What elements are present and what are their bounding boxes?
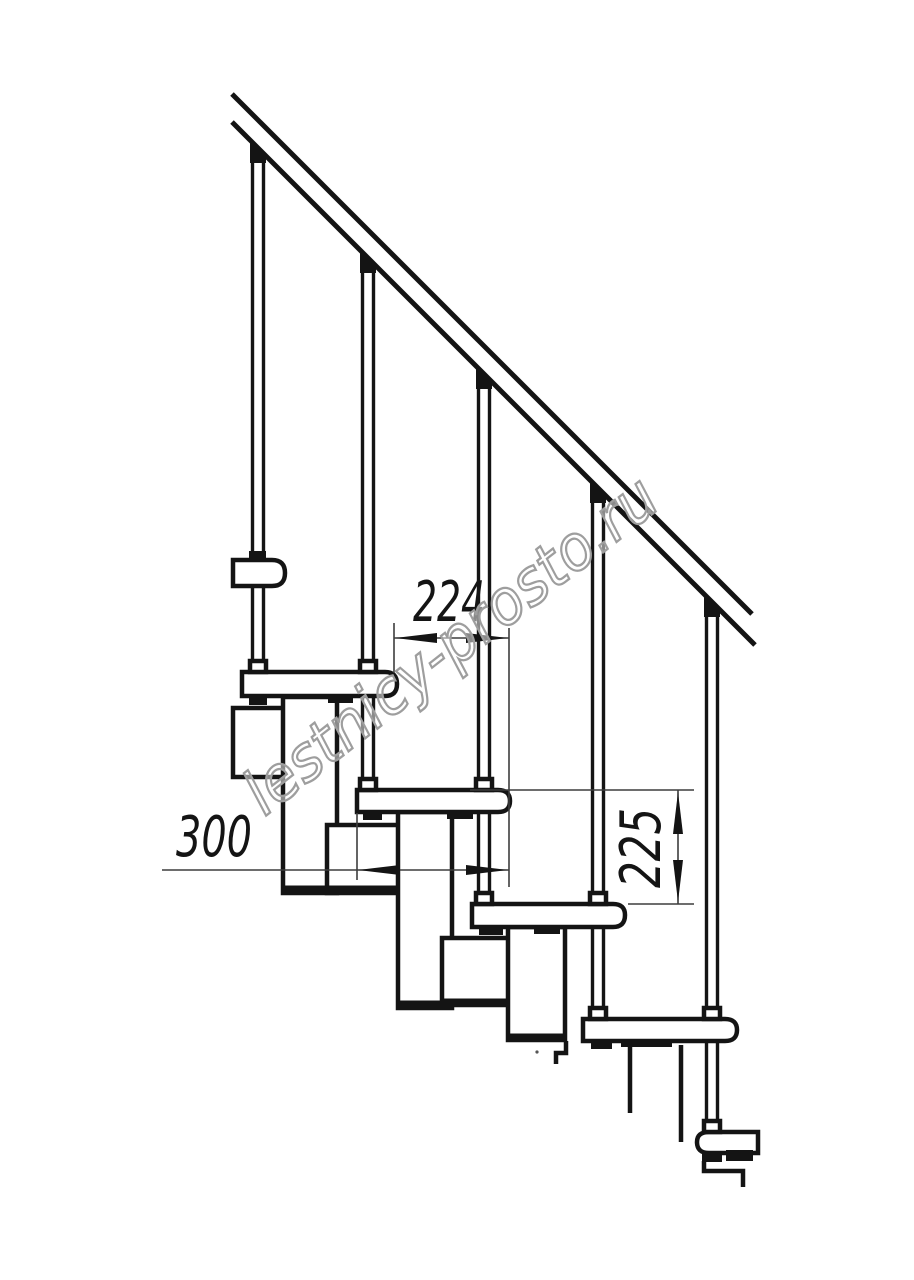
- post-collar: [476, 893, 492, 904]
- tread-3-mount-plate: [534, 925, 560, 934]
- tread-2-post-nut: [363, 810, 382, 820]
- post-collar: [590, 1008, 606, 1019]
- drawing-canvas: 224 300 225 lestnicy-prosto.ru: [0, 0, 914, 1280]
- tread-1-post-nut: [249, 694, 267, 705]
- tread-3: [472, 904, 625, 927]
- module-coupler-1: [327, 825, 404, 893]
- upper-tread-post-collar: [249, 551, 266, 560]
- module-column-3: [508, 927, 565, 1040]
- staircase-technical-drawing: 224 300 225 lestnicy-prosto.ru: [0, 0, 914, 1280]
- module-coupler-3-cut-line: [556, 1041, 566, 1064]
- site-watermark: lestnicy-prosto.ru: [229, 460, 672, 828]
- dimension-arrow-down: [673, 860, 683, 902]
- tread-3-post-nut: [479, 925, 503, 935]
- post-collar: [704, 1008, 720, 1019]
- tread-4-mount-plate: [621, 1039, 672, 1047]
- post-collar: [590, 893, 606, 904]
- tread-2-mount-plate: [447, 810, 473, 819]
- landing-post-nut: [702, 1151, 722, 1162]
- lower-landing-block: [697, 1132, 758, 1153]
- post-collar: [704, 1121, 720, 1132]
- handrail-top-line: [232, 94, 752, 614]
- upper-flight-tread-end: [233, 560, 285, 586]
- post-collar: [250, 661, 266, 672]
- baluster-5: [704, 594, 720, 1132]
- tread-2: [357, 790, 510, 812]
- tread-4-post-nut: [591, 1039, 612, 1049]
- drawing-speck: [535, 1050, 538, 1053]
- post-collar: [360, 779, 376, 790]
- tread-4: [583, 1019, 737, 1041]
- dimension-arrow-right: [466, 865, 508, 875]
- landing-mount-plate: [726, 1150, 753, 1161]
- dimension-label-300: 300: [176, 805, 252, 870]
- handrail: [232, 94, 755, 645]
- baluster-1: [250, 140, 266, 672]
- dimension-label-225: 225: [609, 808, 674, 888]
- landing-bracket-cut-line: [704, 1161, 743, 1187]
- dimension-arrow-up: [673, 792, 683, 834]
- post-collar: [476, 779, 492, 790]
